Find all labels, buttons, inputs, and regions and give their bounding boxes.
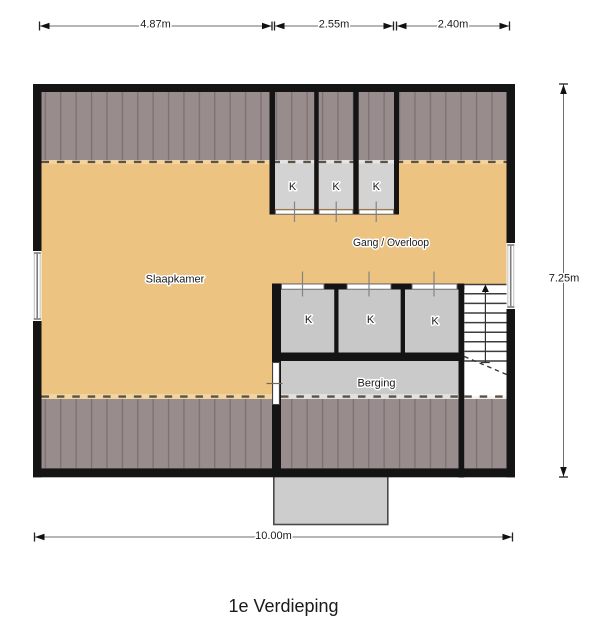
svg-text:K: K [431, 316, 439, 328]
svg-text:K: K [332, 181, 340, 193]
svg-text:2.55m: 2.55m [319, 19, 350, 31]
svg-text:K: K [367, 314, 375, 326]
svg-text:10.00m: 10.00m [255, 530, 292, 542]
svg-text:Berging: Berging [358, 378, 396, 390]
svg-text:Gang / Overloop: Gang / Overloop [353, 237, 429, 249]
svg-text:1e Verdieping: 1e Verdieping [228, 596, 338, 616]
svg-text:K: K [289, 181, 297, 193]
svg-text:7.25m: 7.25m [549, 273, 580, 285]
svg-text:K: K [305, 314, 313, 326]
svg-text:2.40m: 2.40m [438, 19, 469, 31]
svg-text:4.87m: 4.87m [140, 19, 171, 31]
svg-text:K: K [373, 181, 381, 193]
svg-text:Slaapkamer: Slaapkamer [146, 274, 205, 286]
